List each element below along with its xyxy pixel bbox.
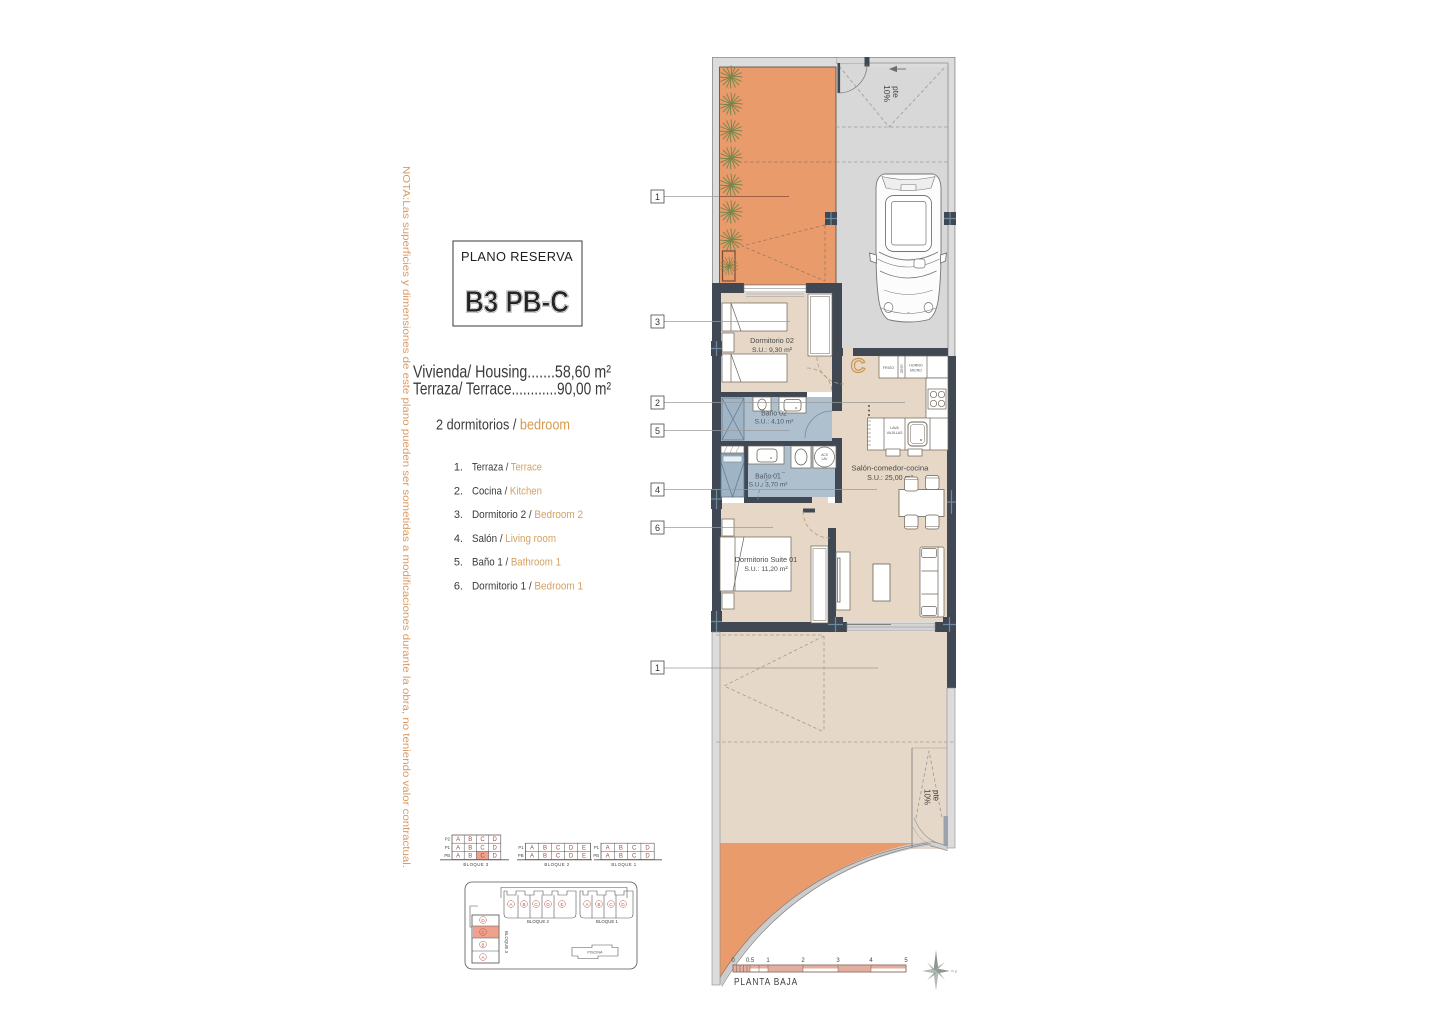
svg-text:10%: 10% (882, 85, 892, 102)
svg-text:B: B (468, 854, 472, 860)
svg-text:PLANO RESERVA: PLANO RESERVA (461, 249, 573, 264)
svg-text:B: B (468, 837, 472, 843)
svg-text:5: 5 (655, 426, 660, 436)
svg-text:B3 PB-C: B3 PB-C (465, 284, 569, 319)
svg-text:0.5: 0.5 (746, 958, 755, 964)
svg-text:Baño 02: Baño 02 (761, 411, 787, 418)
svg-text:DESP.: DESP. (900, 364, 904, 373)
svg-text:5: 5 (904, 958, 908, 964)
svg-text:A: A (456, 845, 460, 851)
svg-text:B: B (543, 854, 547, 860)
svg-text:1.: 1. (454, 462, 463, 474)
svg-text:D: D (493, 845, 498, 851)
svg-text:B: B (522, 902, 525, 907)
svg-text:C: C (851, 355, 866, 378)
svg-text:S.U.: 4,10 m²: S.U.: 4,10 m² (755, 419, 795, 426)
svg-text:Terraza / Terrace: Terraza / Terrace (472, 462, 542, 474)
svg-text:P1: P1 (445, 845, 451, 850)
svg-text:2 dormitorios / bedroom: 2 dormitorios / bedroom (436, 418, 570, 434)
svg-text:10%: 10% (923, 789, 932, 805)
svg-text:C: C (480, 854, 485, 860)
svg-text:Dormitorio 02: Dormitorio 02 (750, 336, 794, 345)
svg-text:BLOQUE 2: BLOQUE 2 (527, 919, 550, 924)
svg-text:D: D (645, 854, 650, 860)
svg-text:6: 6 (655, 523, 660, 533)
svg-text:S.U.: 3,70 m²: S.U.: 3,70 m² (749, 482, 789, 489)
svg-text:FRIGO: FRIGO (883, 366, 895, 370)
svg-text:C: C (632, 854, 637, 860)
svg-text:B: B (619, 854, 623, 860)
svg-text:Dormitorio Suite 01: Dormitorio Suite 01 (735, 555, 797, 564)
svg-text:BLOQUE 2: BLOQUE 2 (544, 862, 569, 867)
svg-text:LAV: LAV (822, 457, 829, 461)
svg-text:D: D (493, 837, 498, 843)
svg-text:Cocina / Kitchen: Cocina / Kitchen (472, 485, 542, 497)
svg-text:Terraza/ Terrace............90: Terraza/ Terrace............90,00 m² (413, 379, 611, 399)
svg-text:P1: P1 (518, 845, 524, 850)
svg-text:S.U.: 11,20 m²: S.U.: 11,20 m² (744, 566, 788, 573)
svg-text:A: A (606, 845, 610, 851)
svg-text:A: A (456, 854, 460, 860)
svg-text:Salón-comedor-cocina: Salón-comedor-cocina (852, 464, 930, 473)
svg-text:Salón / Living room: Salón / Living room (472, 533, 556, 545)
svg-text:BLOQUE 3: BLOQUE 3 (504, 931, 509, 954)
svg-text:D: D (569, 845, 574, 851)
svg-text:E: E (582, 845, 586, 851)
svg-text:PLANTA BAJA: PLANTA BAJA (734, 977, 798, 988)
svg-text:3.: 3. (454, 509, 463, 521)
svg-text:E: E (560, 902, 563, 907)
svg-text:E: E (955, 970, 958, 974)
svg-text:C: C (480, 837, 485, 843)
svg-text:A: A (530, 854, 534, 860)
svg-text:A: A (456, 837, 460, 843)
svg-text:A: A (481, 955, 484, 960)
svg-text:1: 1 (766, 958, 770, 964)
svg-text:4: 4 (655, 485, 660, 495)
svg-text:HORNO: HORNO (909, 364, 923, 368)
svg-text:A: A (530, 845, 534, 851)
svg-text:B: B (619, 845, 623, 851)
svg-text:1: 1 (655, 663, 660, 673)
svg-text:B: B (468, 845, 472, 851)
svg-text:P1: P1 (594, 845, 600, 850)
svg-text:C: C (632, 845, 637, 851)
svg-text:E: E (582, 854, 586, 860)
svg-text:LAVA: LAVA (890, 426, 899, 430)
svg-text:D: D (493, 854, 498, 860)
svg-text:2.: 2. (454, 485, 463, 497)
svg-text:B: B (597, 902, 600, 907)
svg-text:C: C (556, 854, 561, 860)
svg-text:B: B (481, 942, 484, 947)
svg-text:P2: P2 (445, 837, 451, 842)
svg-text:C: C (556, 845, 561, 851)
svg-text:B: B (543, 845, 547, 851)
svg-text:Baño 01: Baño 01 (755, 474, 781, 481)
svg-text:D: D (569, 854, 574, 860)
svg-text:3: 3 (836, 958, 840, 964)
svg-text:5.: 5. (454, 557, 463, 569)
svg-text:4.: 4. (454, 533, 463, 545)
svg-text:BLOQUE 3: BLOQUE 3 (463, 862, 488, 867)
svg-text:S.U.: 9,30 m²: S.U.: 9,30 m² (752, 347, 793, 354)
svg-text:D: D (645, 845, 650, 851)
svg-text:4: 4 (869, 958, 873, 964)
svg-text:PB: PB (518, 853, 524, 858)
svg-text:6.: 6. (454, 581, 463, 593)
svg-text:Baño 1 / Bathroom 1: Baño 1 / Bathroom 1 (472, 557, 561, 569)
svg-text:3: 3 (655, 317, 660, 327)
svg-text:PB: PB (444, 853, 450, 858)
svg-text:BLOQUE 1: BLOQUE 1 (596, 919, 619, 924)
svg-text:C: C (480, 845, 485, 851)
svg-text:A: A (606, 854, 610, 860)
svg-text:A: A (509, 902, 512, 907)
svg-text:NOTA:Las superficies y dimensi: NOTA:Las superficies y dimensiones de es… (400, 166, 412, 868)
svg-text:Dormitorio 1 / Bedroom 1: Dormitorio 1 / Bedroom 1 (472, 581, 583, 593)
svg-text:pte: pte (932, 790, 941, 802)
svg-text:PB: PB (593, 853, 599, 858)
svg-text:Dormitorio 2 / Bedroom 2: Dormitorio 2 / Bedroom 2 (472, 509, 583, 521)
svg-text:BLOQUE 1: BLOQUE 1 (611, 862, 636, 867)
svg-text:PISCINA: PISCINA (587, 951, 603, 955)
svg-text:1: 1 (655, 192, 660, 202)
svg-text:2: 2 (655, 398, 660, 408)
svg-text:2: 2 (801, 958, 805, 964)
svg-text:MICRO: MICRO (910, 369, 922, 373)
svg-text:A: A (585, 902, 588, 907)
svg-text:VAJILLAS: VAJILLAS (886, 431, 903, 435)
